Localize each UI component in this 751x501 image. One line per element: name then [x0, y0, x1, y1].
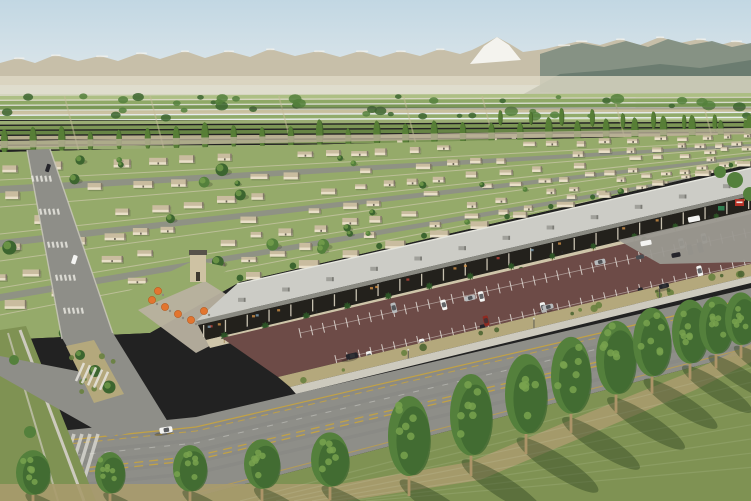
villa-door: [736, 143, 738, 145]
shop-light: [497, 257, 500, 259]
distant-road: [250, 107, 751, 109]
distant-tree: [550, 111, 560, 118]
tree-canopy-shade: [604, 330, 637, 393]
villa-side: [267, 174, 269, 179]
villa-door: [137, 281, 139, 283]
arcade-column: [639, 223, 640, 235]
snow-cap: [51, 55, 61, 57]
shop-light: [375, 286, 378, 288]
villa-door: [435, 225, 437, 227]
villa-door: [747, 135, 749, 137]
verge-tree: [24, 426, 36, 438]
snow-cap: [616, 39, 625, 41]
shrub: [570, 312, 574, 316]
rooftop-unit-side: [597, 215, 599, 219]
foliage-highlight: [709, 313, 715, 319]
villa-wall: [737, 164, 751, 167]
villa-side: [169, 205, 171, 212]
distant-tree: [161, 114, 171, 121]
villa-side: [16, 165, 18, 172]
shop-light: [406, 278, 409, 280]
villa-side: [335, 188, 337, 194]
tree-highlight: [267, 239, 274, 246]
villa-side: [122, 256, 124, 262]
villa-side: [506, 198, 508, 203]
villa-wall: [364, 235, 376, 238]
villa-side: [430, 164, 432, 169]
villa-side: [370, 168, 372, 173]
villa-side: [339, 150, 341, 156]
distant-tree: [215, 99, 223, 105]
villa-wall: [466, 175, 478, 178]
snow-cap: [224, 51, 234, 53]
pedestrian: [562, 251, 563, 254]
villa-side: [541, 166, 543, 172]
villa-door: [359, 154, 361, 156]
villa-side: [609, 138, 611, 143]
villa-door: [660, 138, 662, 140]
tree: [729, 163, 733, 167]
villa-side: [557, 141, 559, 146]
distant-tree: [388, 112, 394, 116]
snow-cap: [314, 51, 325, 53]
rooftop-unit-side: [464, 246, 466, 250]
rooftop-unit-side: [420, 257, 422, 261]
shrub: [494, 327, 499, 332]
villa-side: [235, 240, 237, 246]
villa-side: [610, 192, 612, 197]
villa-side: [193, 155, 195, 162]
median-shrub: [99, 353, 105, 359]
villa-wall: [369, 220, 381, 223]
villa-side: [261, 232, 263, 237]
villa-wall: [360, 171, 372, 174]
shop-light: [218, 323, 221, 325]
villa-door: [707, 138, 709, 140]
distant-tree: [610, 94, 624, 104]
tree-canopy-shade: [23, 456, 51, 495]
villa-wall: [410, 151, 420, 154]
sign-text-bar: [737, 202, 743, 204]
foliage-highlight: [400, 452, 408, 460]
villa-door: [631, 151, 633, 153]
villa-side: [684, 143, 686, 148]
villa-side: [650, 173, 652, 177]
foliage-highlight: [554, 382, 561, 389]
villa-side: [554, 189, 556, 194]
villa-side: [385, 148, 387, 155]
villa-side: [481, 158, 483, 163]
distant-tree: [173, 100, 181, 106]
shop-light: [622, 227, 625, 229]
distant-tree: [556, 95, 562, 99]
villa-side: [101, 183, 103, 190]
villa-side: [624, 177, 626, 182]
villa-wall: [652, 183, 664, 186]
patio-umbrella: [161, 303, 168, 310]
villa-side: [709, 171, 711, 176]
distant-tree: [696, 98, 707, 106]
villa-door: [443, 148, 445, 150]
shop-light: [370, 287, 373, 289]
foliage-highlight: [524, 412, 532, 420]
villa-side: [85, 237, 87, 244]
villa-side: [666, 136, 668, 140]
villa-door: [412, 182, 414, 184]
tree-highlight: [235, 181, 238, 184]
rooftop-unit-side: [685, 195, 687, 199]
villa-wall: [240, 221, 257, 224]
foliage-highlight: [657, 349, 664, 356]
tree-highlight: [618, 189, 622, 193]
foliage-highlight: [464, 381, 472, 389]
arcade-column: [203, 325, 204, 337]
distant-tree: [429, 97, 438, 104]
villa-door: [142, 186, 144, 188]
villa-side: [380, 216, 382, 223]
foliage-highlight: [255, 450, 261, 456]
villa-wall: [221, 244, 237, 247]
villa-side: [374, 232, 376, 238]
snow-cap: [558, 45, 570, 47]
patio-table: [162, 294, 164, 296]
arcade-column: [683, 212, 684, 224]
distant-tree: [677, 97, 687, 105]
villa-door: [224, 158, 226, 160]
verge-tree: [9, 355, 19, 365]
villa-wall: [424, 193, 439, 196]
poplar-tree: [231, 125, 236, 148]
villa-side: [440, 222, 442, 227]
villa-side: [610, 148, 612, 152]
tree-highlight: [480, 182, 483, 185]
tree-highlight: [318, 245, 323, 250]
poplar-tree: [58, 126, 64, 152]
patio-table: [169, 310, 171, 312]
villa-door: [574, 189, 576, 191]
tree: [376, 243, 382, 249]
poplar-tree: [682, 115, 686, 130]
foliage-highlight: [186, 451, 192, 457]
villa-side: [357, 203, 359, 209]
villa-side: [394, 180, 396, 186]
shop-light: [252, 315, 255, 317]
foliage-highlight: [685, 323, 691, 329]
tree-highlight: [344, 225, 348, 229]
villa-wall: [5, 306, 27, 309]
tree: [590, 194, 595, 199]
plaza-tower-cap: [189, 250, 207, 255]
distant-tree: [457, 114, 463, 118]
villa-door: [350, 222, 352, 224]
foliage-highlight: [111, 476, 116, 481]
rooftop-unit-side: [244, 298, 246, 302]
villa-side: [508, 210, 510, 215]
villa-door: [604, 141, 606, 143]
patio-umbrella: [187, 316, 194, 323]
villa-side: [476, 171, 478, 177]
arcade-column: [486, 258, 487, 270]
patio-table: [156, 303, 158, 305]
villa-wall: [599, 150, 612, 153]
tree-highlight: [70, 175, 76, 181]
villa-wall: [23, 274, 41, 277]
villa-side: [583, 151, 585, 157]
tree-highlight: [366, 231, 369, 234]
villa-door: [114, 238, 116, 240]
foliage-highlight: [457, 430, 465, 438]
villa-side: [20, 244, 22, 250]
villa-side: [727, 147, 729, 151]
villa-wall: [652, 149, 663, 152]
rooftop-unit-side: [376, 267, 378, 271]
villa-wall: [677, 139, 688, 142]
foliage-highlight: [27, 457, 33, 463]
tree-highlight: [523, 187, 526, 190]
green-sign: [718, 206, 725, 211]
villa-side: [458, 160, 460, 166]
villa-wall: [250, 177, 268, 180]
foliage-highlight: [395, 406, 403, 414]
villa-wall: [416, 167, 432, 170]
shop-light: [464, 265, 467, 267]
snow-cap: [266, 49, 275, 51]
tree-highlight: [420, 182, 424, 186]
snow-cap: [656, 37, 664, 39]
villa-side: [6, 274, 8, 280]
villa-side: [730, 134, 732, 138]
shop-light: [531, 249, 534, 251]
tree-highlight: [213, 257, 220, 264]
distant-tree: [79, 93, 87, 99]
foliage-highlight: [609, 322, 616, 329]
pedestrian: [316, 310, 317, 313]
snow-cap: [576, 41, 587, 43]
snow-cap: [14, 58, 25, 60]
villa-door: [140, 233, 142, 235]
shop-light: [656, 219, 659, 221]
villa-door: [285, 233, 287, 235]
foliage-highlight: [709, 302, 715, 308]
patio-umbrella: [200, 307, 207, 314]
arcade-column: [312, 299, 313, 311]
foliage-highlight: [720, 332, 726, 338]
villa-wall: [152, 210, 170, 213]
villa-wall: [465, 216, 480, 219]
car-glass: [163, 427, 169, 432]
villa-side: [478, 213, 480, 218]
snow-cap: [436, 49, 444, 51]
villa-side: [151, 250, 153, 256]
snow-cap: [136, 53, 147, 55]
villa-side: [365, 184, 367, 189]
foliage-highlight: [638, 343, 645, 350]
villa-side: [511, 170, 512, 175]
foliage-highlight: [572, 371, 579, 378]
villa-side: [615, 170, 617, 175]
shop-light: [256, 314, 259, 316]
villa-wall: [695, 174, 710, 177]
villa-side: [319, 208, 321, 213]
villa-side: [449, 145, 451, 150]
villa-side: [584, 141, 586, 146]
villa-side: [416, 211, 418, 216]
patio-umbrella: [154, 287, 161, 294]
arcade-column: [661, 217, 662, 229]
distant-tree: [418, 113, 427, 119]
villa-wall: [326, 153, 341, 156]
villa-side: [706, 166, 708, 170]
poplar-tree: [590, 109, 594, 126]
villa-side: [476, 202, 478, 208]
villa-door: [621, 180, 623, 182]
foliage-highlight: [464, 402, 472, 410]
villa-side: [584, 163, 586, 169]
tree-highlight: [118, 162, 121, 165]
villa-side: [152, 181, 154, 188]
villa-wall: [500, 173, 513, 176]
foliage-highlight: [110, 468, 115, 473]
villa-door: [438, 180, 440, 182]
villa-door: [711, 159, 713, 161]
tree: [290, 263, 297, 270]
foliage-highlight: [255, 472, 261, 478]
patio-umbrella: [148, 296, 155, 303]
villa-wall: [557, 205, 575, 208]
distant-tree: [23, 94, 33, 101]
villa-side: [443, 177, 445, 183]
villa-door: [666, 173, 668, 175]
villa-door: [545, 180, 547, 182]
tree-canopy-shade: [559, 347, 592, 413]
villa-side: [147, 228, 149, 235]
villa-side: [416, 179, 418, 185]
shop-light: [277, 309, 280, 311]
scene-canvas: [0, 0, 751, 501]
foliage-highlight: [332, 454, 339, 461]
poplar-tree: [316, 119, 323, 146]
villa-wall: [629, 157, 642, 160]
arcade-column: [225, 320, 226, 332]
villa-side: [438, 191, 440, 195]
shrub: [419, 344, 427, 352]
villa-wall: [470, 161, 482, 164]
roadside-tree: [714, 166, 726, 178]
villa-side: [667, 181, 669, 185]
tree-highlight: [76, 156, 81, 161]
median-shrub: [69, 355, 74, 360]
shrub: [300, 377, 306, 383]
villa-side: [714, 157, 716, 161]
poplar-tree: [712, 114, 716, 131]
villa-wall: [343, 207, 358, 210]
foliage-highlight: [185, 460, 191, 466]
villa-side: [641, 156, 643, 160]
villa-side: [689, 154, 691, 158]
distant-tree: [733, 102, 746, 111]
tree-highlight: [347, 231, 350, 234]
villa-side: [186, 179, 188, 186]
villa-door: [700, 146, 702, 148]
villa-door: [632, 141, 634, 143]
villa-wall: [585, 174, 595, 177]
villa-wall: [284, 177, 300, 180]
distant-tree: [181, 108, 188, 113]
foliage-highlight: [26, 474, 32, 480]
villa-wall: [184, 206, 204, 209]
villa-side: [492, 184, 494, 188]
foliage-highlight: [560, 362, 567, 369]
foliage-highlight: [469, 412, 477, 420]
arcade-column: [290, 305, 291, 317]
villa-side: [661, 147, 663, 151]
patio-table: [195, 323, 197, 325]
foliage-highlight: [604, 329, 611, 336]
villa-side: [419, 147, 421, 153]
shrub: [591, 305, 598, 312]
villa-side: [357, 218, 359, 225]
poplar-tree: [651, 111, 655, 128]
villa-door: [389, 184, 391, 186]
rooftop-unit-side: [641, 205, 643, 209]
villa-wall: [355, 186, 367, 189]
poplar-tree: [621, 113, 625, 129]
distant-tree: [118, 96, 128, 103]
median-tree-highlight: [104, 382, 111, 389]
villa-side: [61, 161, 63, 169]
roadside-tree: [727, 172, 743, 188]
villa-side: [124, 233, 126, 240]
patio-umbrella: [174, 310, 181, 317]
villa-door: [320, 230, 322, 232]
foliage-highlight: [407, 433, 415, 441]
villa-side: [568, 177, 570, 182]
arcade-column: [268, 310, 269, 322]
tree: [504, 214, 510, 220]
villa-side: [18, 191, 20, 199]
villa-door: [710, 152, 712, 154]
shrub: [578, 308, 582, 312]
villa-side: [256, 257, 257, 262]
villa-door: [747, 148, 749, 150]
villa-door: [551, 143, 553, 145]
foliage-highlight: [682, 339, 688, 345]
villa-side: [326, 225, 328, 232]
arcade-column: [726, 202, 727, 214]
foliage-highlight: [327, 447, 334, 454]
villa-wall: [5, 197, 19, 200]
foliage-highlight: [191, 474, 197, 480]
villa-side: [627, 188, 629, 193]
arcade-column: [595, 233, 596, 245]
villa-side: [578, 187, 580, 191]
foliage-highlight: [20, 458, 26, 464]
villa-side: [310, 243, 312, 250]
tree: [548, 204, 553, 209]
foliage-highlight: [715, 315, 721, 321]
foliage-highlight: [569, 386, 576, 393]
villa-side: [670, 172, 672, 176]
arcade-column: [574, 238, 575, 250]
rooftop-unit-side: [552, 226, 554, 230]
foliage-highlight: [402, 423, 410, 431]
villa-wall: [680, 156, 691, 159]
villa-side: [202, 202, 204, 208]
arcade-column: [356, 289, 357, 301]
tree-highlight: [338, 156, 341, 159]
tree-highlight: [117, 158, 120, 161]
distant-tree: [232, 96, 240, 102]
